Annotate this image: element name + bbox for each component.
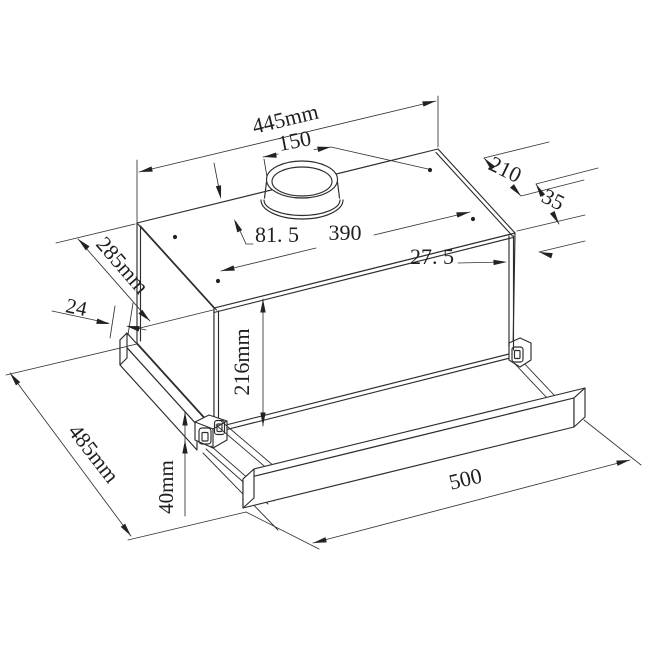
back-edge-leader bbox=[214, 163, 224, 200]
left-mounting-bracket bbox=[195, 415, 227, 448]
dim-offset-35: 35 bbox=[517, 168, 598, 258]
drawing-page: 445mm 150 210 35 81. 5 390 27. 5 bbox=[0, 0, 645, 645]
dim-label-rear-offset: 35 bbox=[538, 183, 569, 215]
bar-front-face bbox=[243, 398, 574, 508]
dim-label-duct-offset-left: 81. 5 bbox=[255, 222, 299, 247]
range-hood-dimension-drawing: 445mm 150 210 35 81. 5 390 27. 5 bbox=[0, 0, 645, 645]
dim-depth-210: 210 bbox=[482, 142, 584, 198]
dim-label-rear-gap: 27. 5 bbox=[410, 244, 454, 269]
dim-label-side-offset: 24 bbox=[64, 293, 90, 321]
dim-label-body-height: 216mm bbox=[229, 328, 254, 395]
right-mounting-bracket bbox=[509, 338, 531, 367]
dim-label-visor-height: 40mm bbox=[154, 460, 178, 514]
dim-label-duct-span: 390 bbox=[329, 220, 362, 245]
dim-label-handle-length: 500 bbox=[446, 463, 484, 495]
dim-label-total-depth: 485mm bbox=[63, 419, 124, 487]
dim-label-duct-diameter: 150 bbox=[276, 125, 313, 156]
